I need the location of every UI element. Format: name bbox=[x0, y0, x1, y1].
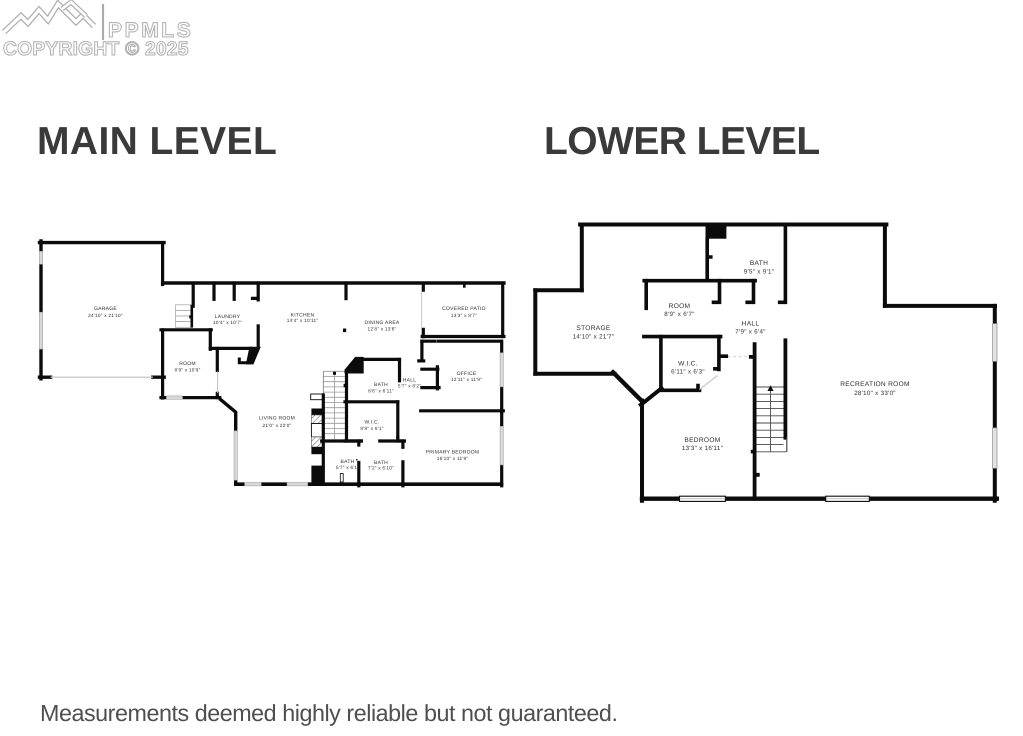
svg-text:Measurements deemed highly rel: Measurements deemed highly reliable but … bbox=[40, 700, 617, 726]
svg-text:DINING AREA: DINING AREA bbox=[365, 320, 400, 326]
svg-text:GARAGE: GARAGE bbox=[94, 306, 117, 312]
svg-text:7'9" x 6'4": 7'9" x 6'4" bbox=[735, 328, 765, 335]
svg-text:14'4" x 10'11": 14'4" x 10'11" bbox=[287, 318, 318, 324]
svg-text:ROOM: ROOM bbox=[669, 302, 691, 310]
svg-text:9'5" x 9'1": 9'5" x 9'1" bbox=[744, 268, 774, 275]
svg-text:BATH: BATH bbox=[750, 259, 768, 267]
svg-text:HALL: HALL bbox=[742, 320, 760, 328]
svg-text:KITCHEN: KITCHEN bbox=[291, 312, 315, 318]
svg-text:PRIMARY BEDROOM: PRIMARY BEDROOM bbox=[426, 450, 480, 456]
svg-text:6'11" x 6'3": 6'11" x 6'3" bbox=[671, 368, 705, 375]
svg-text:RECREATION ROOM: RECREATION ROOM bbox=[840, 380, 910, 388]
svg-text:24'10" x 21'10": 24'10" x 21'10" bbox=[88, 313, 123, 319]
svg-text:OFFICE: OFFICE bbox=[457, 371, 477, 377]
svg-text:21'0" x 22'0": 21'0" x 22'0" bbox=[263, 423, 292, 429]
svg-text:28'10" x 33'0": 28'10" x 33'0" bbox=[854, 390, 896, 397]
svg-text:MAIN LEVEL: MAIN LEVEL bbox=[37, 120, 277, 163]
svg-text:COPYRIGHT © 2025: COPYRIGHT © 2025 bbox=[3, 39, 189, 60]
svg-text:14'10" x 21'7": 14'10" x 21'7" bbox=[573, 333, 615, 340]
svg-text:5'7" x 6'1": 5'7" x 6'1" bbox=[336, 465, 359, 471]
svg-text:13'3" x 8'7": 13'3" x 8'7" bbox=[451, 312, 477, 318]
svg-text:8'9" x 6'7": 8'9" x 6'7" bbox=[664, 311, 694, 318]
svg-text:12'11" x 11'9": 12'11" x 11'9" bbox=[451, 376, 482, 382]
svg-text:16'10" x 11'9": 16'10" x 11'9" bbox=[437, 456, 468, 462]
svg-text:STORAGE: STORAGE bbox=[576, 324, 610, 332]
svg-text:7'2" x 6'10": 7'2" x 6'10" bbox=[368, 465, 394, 471]
svg-text:8'6" x 6'11": 8'6" x 6'11" bbox=[368, 388, 394, 394]
svg-text:BEDROOM: BEDROOM bbox=[684, 436, 720, 444]
svg-text:8'9" x 6'1": 8'9" x 6'1" bbox=[360, 426, 383, 432]
svg-text:12'8" x 13'6": 12'8" x 13'6" bbox=[368, 326, 397, 332]
svg-text:8'9" x 10'9": 8'9" x 10'9" bbox=[174, 367, 200, 373]
svg-text:LOWER LEVEL: LOWER LEVEL bbox=[544, 120, 820, 163]
svg-text:BATH: BATH bbox=[341, 459, 355, 465]
svg-text:HALL: HALL bbox=[403, 378, 417, 384]
svg-text:5'7" x 8'2": 5'7" x 8'2" bbox=[398, 383, 421, 389]
svg-text:COVERED PATIO: COVERED PATIO bbox=[442, 306, 486, 312]
svg-text:ROOM: ROOM bbox=[179, 361, 196, 367]
svg-text:13'3" x 16'11": 13'3" x 16'11" bbox=[682, 445, 723, 452]
svg-text:W.I.C.: W.I.C. bbox=[678, 360, 698, 368]
svg-text:W.I.C.: W.I.C. bbox=[364, 420, 379, 426]
svg-text:BATH: BATH bbox=[374, 382, 388, 388]
svg-text:LAUNDRY: LAUNDRY bbox=[215, 314, 241, 320]
svg-text:LIVING ROOM: LIVING ROOM bbox=[259, 416, 295, 422]
svg-text:10'4" x 10'7": 10'4" x 10'7" bbox=[213, 320, 242, 326]
